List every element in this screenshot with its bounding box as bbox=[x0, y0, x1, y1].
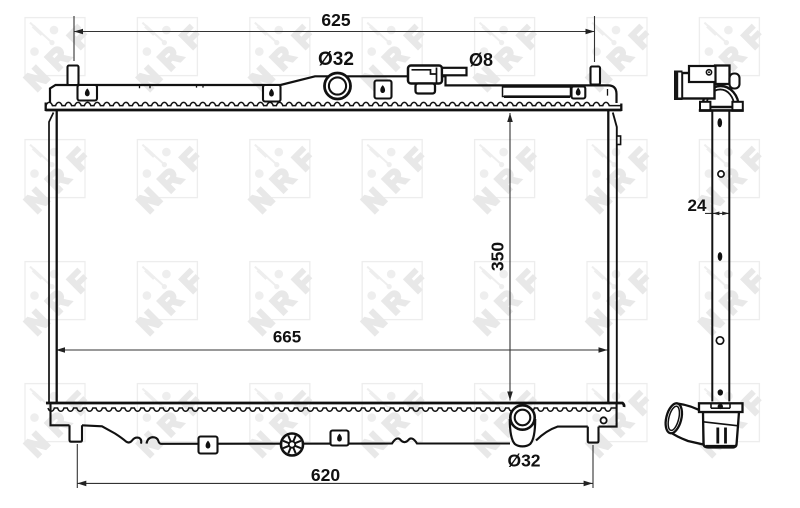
svg-text:Ø32: Ø32 bbox=[507, 451, 540, 471]
svg-text:350: 350 bbox=[488, 242, 508, 271]
svg-text:24: 24 bbox=[688, 196, 707, 215]
svg-text:620: 620 bbox=[311, 465, 340, 485]
svg-text:Ø32: Ø32 bbox=[318, 49, 354, 70]
svg-text:625: 625 bbox=[321, 10, 350, 30]
svg-text:665: 665 bbox=[273, 328, 301, 347]
svg-text:Ø8: Ø8 bbox=[469, 50, 493, 70]
